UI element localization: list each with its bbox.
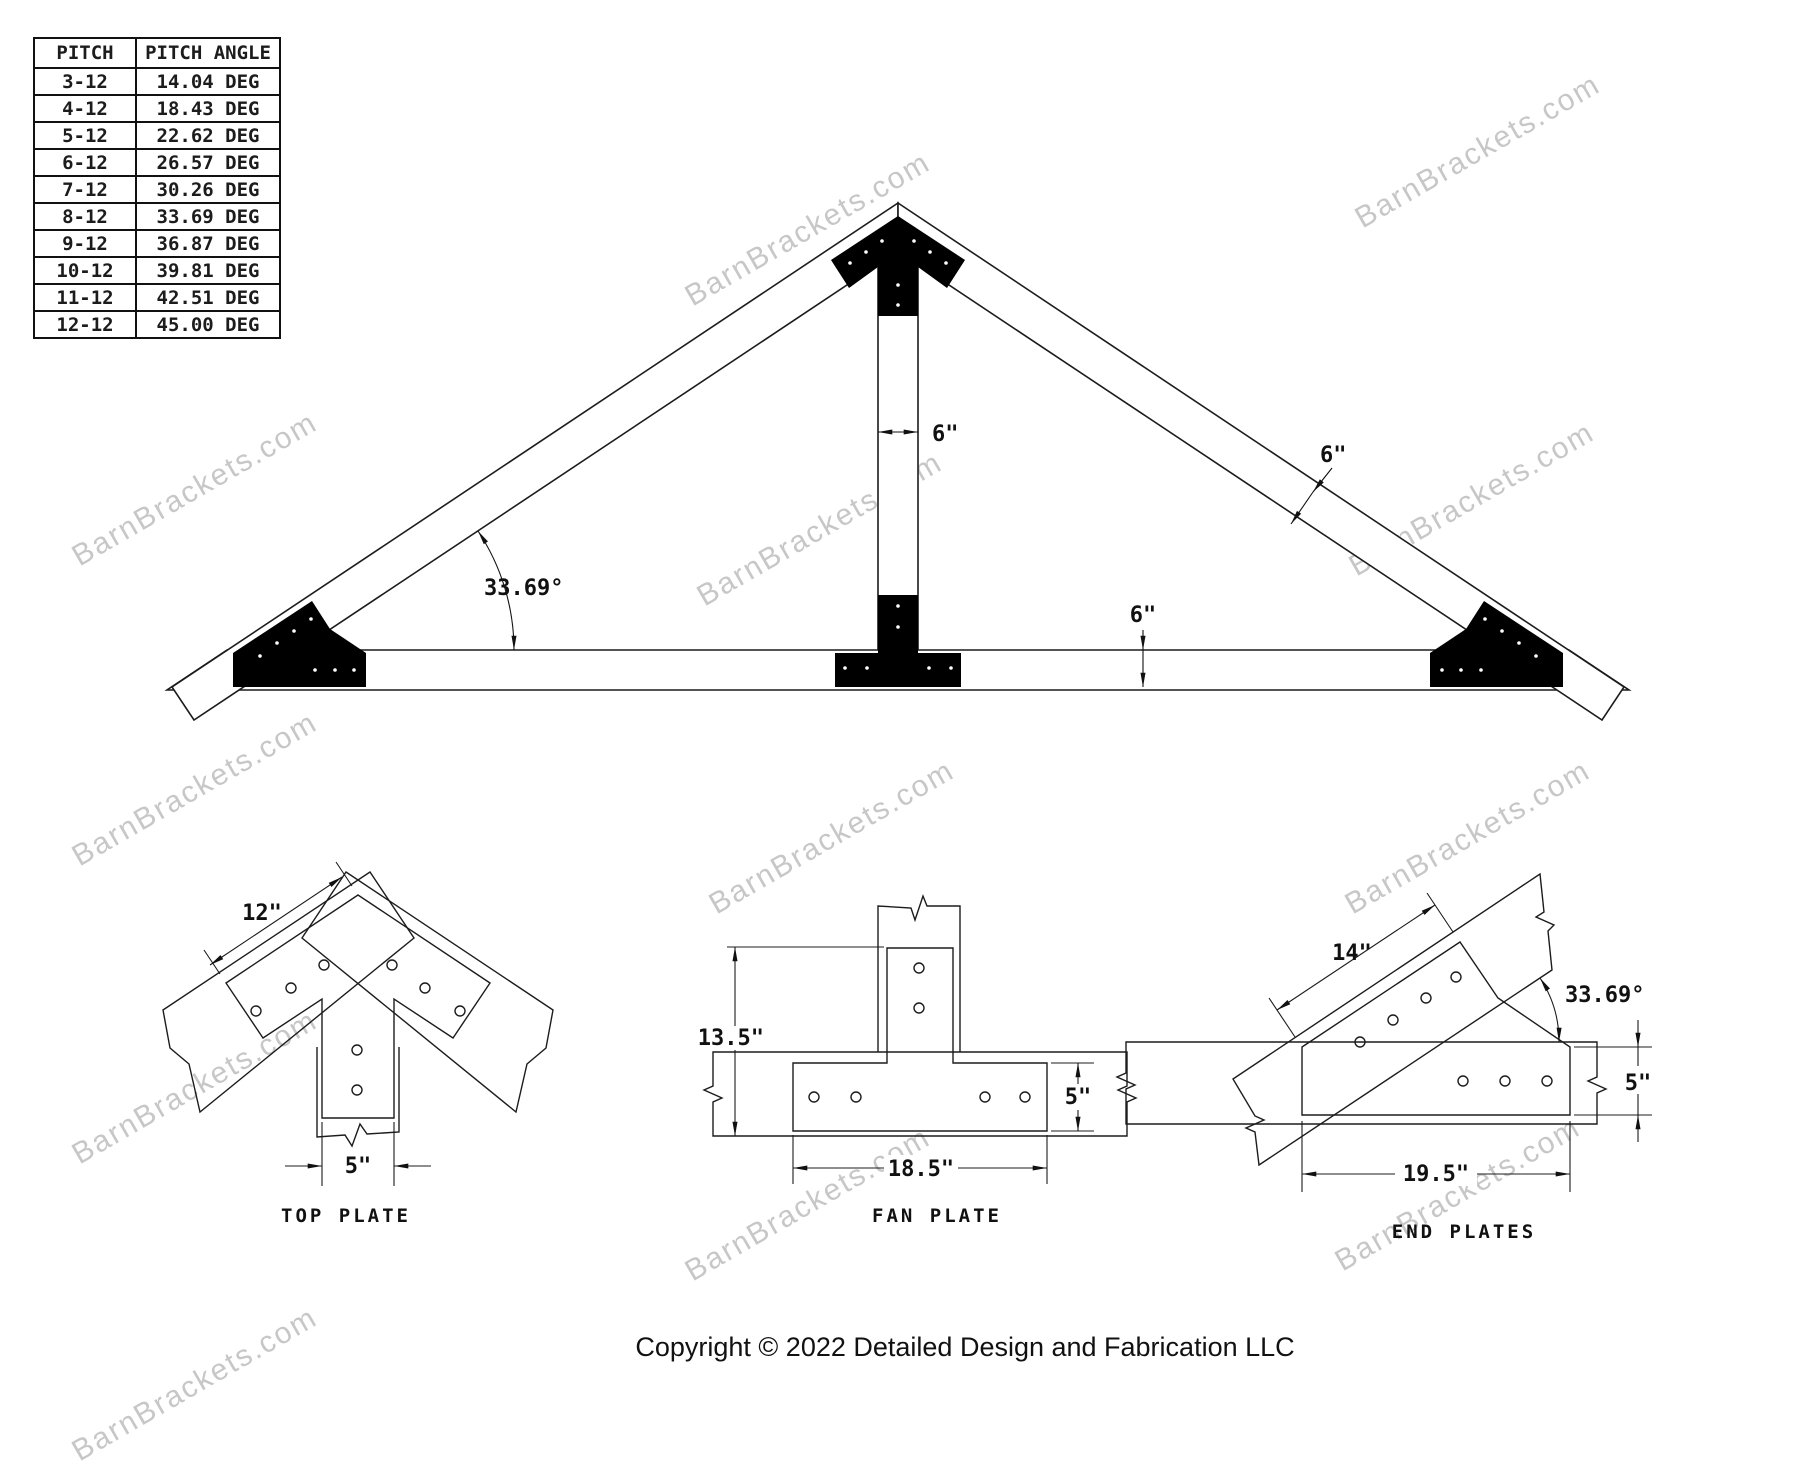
fan-plate-height-label: 13.5" xyxy=(698,1026,764,1051)
peak-top-plate xyxy=(831,216,965,316)
fan-plate-dims xyxy=(727,947,1094,1184)
fan-plate-width-label: 5" xyxy=(1065,1085,1092,1110)
truss-drawing: 6" 6" 6" 33.69° 12" 5" TOP PLATE xyxy=(0,0,1800,1391)
detail-bottom-chord-beam-end xyxy=(1117,1042,1606,1124)
fan-plate-detail xyxy=(704,896,1136,1184)
end-plate-chord-leg-label: 19.5" xyxy=(1403,1162,1469,1187)
drawing-sheet: { "watermark": { "text": "BarnBrackets.c… xyxy=(0,0,1800,1391)
fan-plate-outline xyxy=(793,948,1047,1131)
fan-plate-base-length-label: 18.5" xyxy=(888,1157,954,1182)
end-plate-rafter-leg-label: 14" xyxy=(1332,941,1372,966)
detail-king-post-beam-fan xyxy=(878,896,960,1052)
king-post-width-label: 6" xyxy=(932,422,959,447)
end-plates-title: END PLATES xyxy=(1392,1221,1536,1243)
top-plate-title: TOP PLATE xyxy=(281,1205,411,1227)
top-plate-detail xyxy=(163,862,553,1186)
chord-depth-label: 6" xyxy=(1130,603,1157,628)
truss-pitch-angle-label: 33.69° xyxy=(484,576,563,601)
end-plate-outline xyxy=(1302,942,1570,1115)
end-plate-angle-label: 33.69° xyxy=(1565,983,1644,1008)
top-plate-holes xyxy=(251,960,465,1095)
fan-plate-title: FAN PLATE xyxy=(872,1205,1002,1227)
king-post xyxy=(878,258,918,650)
top-plate-stem-width-label: 5" xyxy=(345,1154,372,1179)
fan-plate-holes xyxy=(809,963,1030,1102)
copyright-line: Copyright © 2022 Detailed Design and Fab… xyxy=(65,1332,1800,1363)
center-fan-plate xyxy=(835,595,961,687)
detail-rafter-beam-end xyxy=(1233,874,1554,1165)
detail-king-post-beam xyxy=(317,1047,399,1146)
rafter-depth-label: 6" xyxy=(1320,443,1347,468)
end-plate-width-label: 5" xyxy=(1625,1071,1652,1096)
end-plates-detail xyxy=(1117,874,1652,1192)
top-plate-wing-length-label: 12" xyxy=(242,901,282,926)
